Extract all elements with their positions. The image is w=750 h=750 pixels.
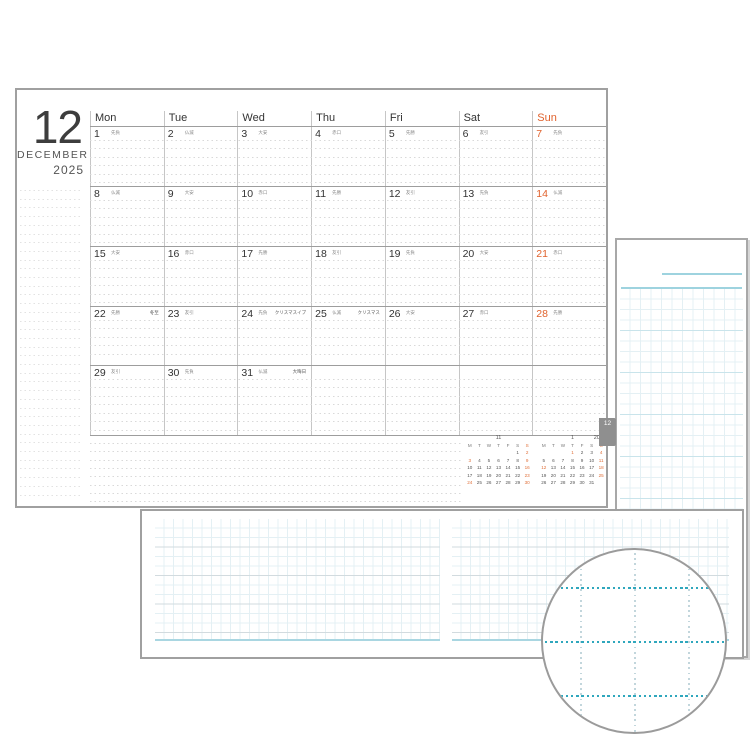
magnified-grid-horizontal-dot (675, 695, 677, 697)
magnified-grid-horizontal-dot (649, 695, 651, 697)
mini-cal-day-header: M (539, 444, 549, 449)
magnified-grid-vertical-dot (634, 714, 636, 716)
magnified-grid-horizontal-dot (654, 695, 656, 697)
magnified-grid-horizontal-dot (561, 695, 563, 697)
mini-cal-date: 22 (513, 474, 523, 479)
mini-cal-day-header: T (549, 444, 559, 449)
magnified-grid-horizontal-dot (711, 695, 713, 697)
magnified-grid-horizontal-dot (581, 641, 583, 643)
magnified-grid-horizontal-dot (722, 695, 724, 697)
magnified-grid-horizontal-dot (706, 641, 708, 643)
magnified-grid-vertical-dot (688, 657, 690, 659)
magnified-grid-horizontal-dot (696, 641, 698, 643)
magnified-grid-horizontal-dot (701, 587, 703, 589)
magnified-grid-vertical-dot (580, 673, 582, 675)
magnified-grid-horizontal-dot (633, 587, 635, 589)
mini-cal-date: 5 (484, 459, 494, 464)
magnified-grid-vertical-dot (580, 657, 582, 659)
magnified-grid-vertical-dot (580, 652, 582, 654)
magnified-grid-horizontal-dot (545, 695, 547, 697)
mini-cal-date: 19 (539, 474, 549, 479)
magnified-grid-vertical-dot (688, 652, 690, 654)
mini-cal-date: 26 (539, 481, 549, 486)
magnified-grid-vertical-dot (688, 667, 690, 669)
grid-panel-left (155, 519, 440, 641)
magnified-grid-vertical-dot (688, 683, 690, 685)
magnified-grid-vertical-dot (634, 652, 636, 654)
magnified-grid-horizontal-dot (607, 695, 609, 697)
magnified-grid-horizontal-dot (665, 641, 667, 643)
magnified-grid-vertical-dot (634, 709, 636, 711)
magnified-grid-vertical-dot (688, 678, 690, 680)
mini-cal-date: 1 (513, 451, 523, 456)
magnified-grid-horizontal-dot (628, 641, 630, 643)
magnified-grid-vertical-dot (688, 662, 690, 664)
mini-cal-date: 20 (549, 474, 559, 479)
mini-cal-day-header: S (522, 444, 532, 449)
mini-cal-day-header: T (568, 444, 578, 449)
magnified-grid-horizontal-dot (706, 587, 708, 589)
magnified-grid-horizontal-dot (685, 695, 687, 697)
magnified-grid-horizontal-dot (561, 641, 563, 643)
magnified-grid-vertical-dot (634, 626, 636, 628)
magnified-grid-horizontal-dot (555, 641, 557, 643)
magnified-grid-vertical-dot (634, 725, 636, 727)
mini-cal-date: 16 (522, 466, 532, 471)
magnified-grid-vertical-dot (580, 574, 582, 576)
mini-cal-date: 13 (549, 466, 559, 471)
mini-cal-day-header: W (484, 444, 494, 449)
mini-cal-date: 28 (503, 481, 513, 486)
mini-cal-date: 1 (568, 451, 578, 456)
mini-cal-date: 6 (494, 459, 504, 464)
magnified-grid-vertical-dot (634, 610, 636, 612)
mini-cal-year-label: 2026 (539, 435, 606, 441)
magnified-grid-horizontal-dot (545, 587, 547, 589)
magnified-grid-vertical-dot (634, 579, 636, 581)
magnified-grid-vertical-dot (688, 626, 690, 628)
magnified-grid-horizontal-dot (587, 641, 589, 643)
magnified-grid-horizontal-dot (555, 587, 557, 589)
magnified-grid-vertical-dot (580, 667, 582, 669)
magnified-grid-vertical-dot (580, 714, 582, 716)
mini-cal-day-header: T (475, 444, 485, 449)
magnified-grid-vertical-dot (580, 589, 582, 591)
mini-cal-day-header: W (558, 444, 568, 449)
mini-cal-date: 9 (522, 459, 532, 464)
mini-cal-date: 18 (596, 466, 606, 471)
magnified-grid-horizontal-dot (561, 587, 563, 589)
magnified-grid-horizontal-dot (644, 587, 646, 589)
mini-cal-date: 19 (484, 474, 494, 479)
magnified-grid-horizontal-dot (639, 695, 641, 697)
magnified-grid-horizontal-dot (576, 587, 578, 589)
magnified-grid-horizontal-dot (623, 641, 625, 643)
magnified-grid-vertical-dot (688, 605, 690, 607)
magnified-grid-vertical-dot (634, 730, 636, 732)
magnified-grid-horizontal-dot (717, 641, 719, 643)
magnified-grid-horizontal-dot (587, 587, 589, 589)
magnified-grid-vertical-dot (688, 584, 690, 586)
magnified-grid-horizontal-dot (680, 695, 682, 697)
magnified-grid-vertical-dot (580, 725, 582, 727)
magnified-grid-vertical-dot (580, 569, 582, 571)
mini-cal-date: 4 (475, 459, 485, 464)
magnified-grid-vertical-dot (688, 569, 690, 571)
magnified-grid-vertical-dot (634, 569, 636, 571)
magnified-grid-vertical-dot (688, 631, 690, 633)
magnified-grid-vertical-dot (688, 647, 690, 649)
magnified-grid-vertical-dot (688, 704, 690, 706)
magnified-grid-vertical-dot (580, 647, 582, 649)
magnified-grid-horizontal-dot (701, 695, 703, 697)
magnified-grid-horizontal-dot (706, 695, 708, 697)
mini-cal-date: 20 (494, 474, 504, 479)
magnified-grid-horizontal-dot (685, 641, 687, 643)
mini-cal-date: 31 (587, 481, 597, 486)
magnified-grid-horizontal-dot (597, 641, 599, 643)
magnified-grid-horizontal-dot (555, 695, 557, 697)
mini-cal-date: 6 (549, 459, 559, 464)
magnified-grid-vertical-dot (634, 631, 636, 633)
magnified-grid-horizontal-dot (711, 641, 713, 643)
mini-cal-date: 29 (513, 481, 523, 486)
magnified-grid-horizontal-dot (654, 641, 656, 643)
magnified-grid-horizontal-dot (618, 641, 620, 643)
magnified-grid-vertical-dot (634, 678, 636, 680)
mini-cal-date: 12 (539, 466, 549, 471)
mini-cal-date: 10 (587, 459, 597, 464)
magnified-grid-horizontal-dot (659, 641, 661, 643)
magnified-grid-vertical-dot (580, 615, 582, 617)
mini-cal-date: 22 (568, 474, 578, 479)
magnified-grid-vertical-dot (688, 558, 690, 560)
magnified-grid-horizontal-dot (659, 587, 661, 589)
magnified-grid-vertical-dot (580, 636, 582, 638)
magnified-grid-horizontal-dot (592, 695, 594, 697)
magnified-grid-horizontal-dot (550, 695, 552, 697)
magnified-grid-horizontal-dot (659, 695, 661, 697)
mini-cal-date: 25 (596, 474, 606, 479)
magnified-grid-horizontal-dot (571, 587, 573, 589)
magnified-grid-vertical-dot (580, 579, 582, 581)
mini-cal-date: 29 (568, 481, 578, 486)
magnified-grid-vertical-dot (634, 615, 636, 617)
mini-cal-day-header: S (587, 444, 597, 449)
magnified-grid-vertical-dot (580, 626, 582, 628)
magnified-grid-vertical-dot (580, 730, 582, 732)
magnified-grid-horizontal-dot (639, 587, 641, 589)
magnified-grid-vertical-dot (634, 647, 636, 649)
magnified-grid-horizontal-dot (602, 695, 604, 697)
magnified-grid-vertical-dot (580, 610, 582, 612)
magnified-grid-horizontal-dot (566, 587, 568, 589)
magnified-grid-horizontal-dot (649, 641, 651, 643)
magnified-grid-horizontal-dot (597, 587, 599, 589)
magnified-grid-horizontal-dot (576, 695, 578, 697)
mini-cal-date: 17 (587, 466, 597, 471)
magnified-grid-vertical-dot (688, 709, 690, 711)
magnified-grid-horizontal-dot (550, 641, 552, 643)
magnified-grid-vertical-dot (634, 636, 636, 638)
mini-cal-date: 4 (596, 451, 606, 456)
magnified-grid-horizontal-dot (628, 587, 630, 589)
magnified-grid-horizontal-dot (623, 587, 625, 589)
mini-cal-date: 9 (577, 459, 587, 464)
magnified-grid-horizontal-dot (644, 641, 646, 643)
magnified-grid-vertical-dot (688, 579, 690, 581)
magnified-grid-vertical-dot (688, 621, 690, 623)
mini-cal-date: 2 (577, 451, 587, 456)
mini-cal-day-header: S (513, 444, 523, 449)
magnified-grid-vertical-dot (580, 678, 582, 680)
mini-cal-date: 16 (577, 466, 587, 471)
magnified-grid-vertical-dot (688, 610, 690, 612)
mini-cal-date: 27 (549, 481, 559, 486)
magnified-grid-horizontal-dot (566, 641, 568, 643)
magnified-grid-horizontal-dot (550, 587, 552, 589)
magnified-grid-vertical-dot (580, 584, 582, 586)
magnified-grid-vertical-dot (634, 688, 636, 690)
mini-cal-date: 3 (465, 459, 475, 464)
magnified-grid-vertical-dot (580, 563, 582, 565)
magnified-grid-horizontal-dot (717, 695, 719, 697)
magnified-grid-vertical-dot (634, 553, 636, 555)
magnified-grid-horizontal-dot (691, 587, 693, 589)
magnified-grid-horizontal-dot (623, 695, 625, 697)
mini-cal-date: 23 (577, 474, 587, 479)
magnified-grid-horizontal-dot (644, 695, 646, 697)
mini-cal-date: 26 (484, 481, 494, 486)
mini-cal-date: 15 (568, 466, 578, 471)
magnified-grid-horizontal-dot (670, 641, 672, 643)
mini-cal-month-label: 11 (465, 435, 532, 441)
mini-cal-date: 11 (596, 459, 606, 464)
mini-cal-date: 5 (539, 459, 549, 464)
mini-cal-date: 7 (558, 459, 568, 464)
monthly-calendar-page: 12 DECEMBER 2025 MonTueWedThuFriSatSun1先… (15, 88, 608, 508)
magnified-grid-vertical-dot (580, 699, 582, 701)
mini-cal-date: 10 (465, 466, 475, 471)
magnified-grid-horizontal-dot (649, 587, 651, 589)
magnified-grid-vertical-dot (634, 683, 636, 685)
mini-cal-date: 14 (503, 466, 513, 471)
mini-cal-day-header: T (494, 444, 504, 449)
mini-cal-date: 21 (503, 474, 513, 479)
magnified-grid-vertical-dot (688, 699, 690, 701)
mini-cal-day-header: F (503, 444, 513, 449)
mini-cal-day-header: M (465, 444, 475, 449)
product-image: 12 DECEMBER 2025 MonTueWedThuFriSatSun1先… (0, 0, 750, 750)
magnified-grid-vertical-dot (580, 558, 582, 560)
magnified-grid-horizontal-dot (592, 587, 594, 589)
magnified-grid-horizontal-dot (602, 641, 604, 643)
magnified-grid-vertical-dot (580, 683, 582, 685)
magnified-grid-vertical-dot (580, 605, 582, 607)
magnified-grid-vertical-dot (634, 563, 636, 565)
magnified-grid-horizontal-dot (613, 641, 615, 643)
magnified-grid-horizontal-dot (581, 695, 583, 697)
mini-cal-date: 24 (465, 481, 475, 486)
magnified-grid-vertical-dot (580, 621, 582, 623)
magnified-grid-vertical-dot (580, 553, 582, 555)
magnified-grid-horizontal-dot (670, 695, 672, 697)
magnified-grid-horizontal-dot (607, 587, 609, 589)
magnified-grid-vertical-dot (634, 704, 636, 706)
mini-cal-date: 23 (522, 474, 532, 479)
magnified-grid-vertical-dot (580, 719, 582, 721)
magnified-grid-horizontal-dot (654, 587, 656, 589)
magnified-grid-vertical-dot (688, 563, 690, 565)
mini-cal-date: 25 (475, 481, 485, 486)
magnified-grid-horizontal-dot (633, 695, 635, 697)
mini-cal-date: 3 (587, 451, 597, 456)
magnified-grid-horizontal-dot (571, 641, 573, 643)
magnified-grid-vertical-dot (634, 584, 636, 586)
magnified-grid-horizontal-dot (571, 695, 573, 697)
magnified-grid-vertical-dot (688, 595, 690, 597)
mini-cal-date: 24 (587, 474, 597, 479)
magnified-grid-vertical-dot (634, 667, 636, 669)
magnified-grid-vertical-dot (688, 673, 690, 675)
magnified-grid-horizontal-dot (628, 695, 630, 697)
mini-cal-date: 28 (558, 481, 568, 486)
magnified-grid-horizontal-dot (717, 587, 719, 589)
magnified-grid-horizontal-dot (597, 695, 599, 697)
magnified-grid-horizontal-dot (618, 587, 620, 589)
magnified-grid-vertical-dot (580, 688, 582, 690)
mini-cal-date: 2 (522, 451, 532, 456)
magnified-grid-horizontal-dot (722, 641, 724, 643)
mini-cal-date: 11 (475, 466, 485, 471)
magnified-grid-vertical-dot (688, 589, 690, 591)
magnified-grid-horizontal-dot (581, 587, 583, 589)
magnified-grid-horizontal-dot (545, 641, 547, 643)
magnified-grid-horizontal-dot (696, 695, 698, 697)
magnified-grid-vertical-dot (634, 574, 636, 576)
mini-cal-date: 13 (494, 466, 504, 471)
mini-cal-date: 7 (503, 459, 513, 464)
mini-cal-date: 18 (475, 474, 485, 479)
magnified-grid-vertical-dot (688, 574, 690, 576)
magnified-grid-horizontal-dot (665, 587, 667, 589)
mini-cal-date: 15 (513, 466, 523, 471)
magnified-grid-vertical-dot (688, 641, 690, 643)
magnified-grid-vertical-dot (688, 725, 690, 727)
magnified-grid-horizontal-dot (607, 641, 609, 643)
mini-cal-date: 12 (484, 466, 494, 471)
magnified-grid-vertical-dot (688, 636, 690, 638)
magnified-grid-horizontal-dot (665, 695, 667, 697)
magnified-grid-vertical-dot (688, 553, 690, 555)
mini-cal-date: 8 (513, 459, 523, 464)
mini-cal-date: 14 (558, 466, 568, 471)
magnified-grid-horizontal-dot (691, 641, 693, 643)
magnified-grid-horizontal-dot (675, 641, 677, 643)
magnified-grid-horizontal-dot (680, 641, 682, 643)
magnified-grid-horizontal-dot (618, 695, 620, 697)
magnified-grid-vertical-dot (688, 693, 690, 695)
magnified-grid-horizontal-dot (696, 587, 698, 589)
magnified-grid-vertical-dot (634, 605, 636, 607)
month-index-tab: 12 (599, 418, 616, 446)
magnified-grid-vertical-dot (580, 600, 582, 602)
magnified-grid-horizontal-dot (675, 587, 677, 589)
magnified-grid-horizontal-dot (639, 641, 641, 643)
magnified-grid-horizontal-dot (691, 695, 693, 697)
magnified-grid-vertical-dot (634, 657, 636, 659)
magnified-grid-horizontal-dot (613, 587, 615, 589)
mini-calendars: 11MTWTFSS1234567891011121314151617181920… (17, 90, 606, 506)
mini-cal-date: 30 (577, 481, 587, 486)
magnified-grid-vertical-dot (634, 719, 636, 721)
magnified-grid-vertical-dot (580, 631, 582, 633)
notes-title-line (662, 273, 742, 275)
magnified-grid-horizontal-dot (602, 587, 604, 589)
magnified-grid-horizontal-dot (613, 695, 615, 697)
magnified-grid-horizontal-dot (566, 695, 568, 697)
magnified-grid-horizontal-dot (711, 587, 713, 589)
magnified-grid-horizontal-dot (587, 695, 589, 697)
magnifier-circle (541, 548, 727, 734)
magnified-grid-vertical-dot (634, 600, 636, 602)
mini-cal-date: 21 (558, 474, 568, 479)
magnified-grid-horizontal-dot (722, 587, 724, 589)
mini-cal-date: 27 (494, 481, 504, 486)
magnified-grid-vertical-dot (688, 714, 690, 716)
mini-cal-date: 8 (568, 459, 578, 464)
magnified-grid-vertical-dot (580, 595, 582, 597)
mini-cal-date: 17 (465, 474, 475, 479)
magnified-grid-vertical-dot (634, 662, 636, 664)
magnified-grid-horizontal-dot (633, 641, 635, 643)
magnified-grid-vertical-dot (580, 704, 582, 706)
magnified-grid-vertical-dot (634, 589, 636, 591)
magnified-grid-vertical-dot (688, 719, 690, 721)
magnified-grid-vertical-dot (634, 699, 636, 701)
magnified-grid-vertical-dot (688, 600, 690, 602)
magnified-grid-vertical-dot (580, 662, 582, 664)
magnified-grid-horizontal-dot (670, 587, 672, 589)
magnified-grid-vertical-dot (634, 621, 636, 623)
magnified-grid-horizontal-dot (701, 641, 703, 643)
magnified-grid-horizontal-dot (592, 641, 594, 643)
mini-cal-day-header: F (577, 444, 587, 449)
magnified-grid-vertical-dot (634, 673, 636, 675)
magnified-grid-vertical-dot (688, 730, 690, 732)
magnified-grid-vertical-dot (688, 615, 690, 617)
magnified-grid-horizontal-dot (576, 641, 578, 643)
magnified-grid-vertical-dot (634, 558, 636, 560)
magnified-grid-vertical-dot (634, 595, 636, 597)
magnified-grid-vertical-dot (688, 688, 690, 690)
magnified-grid-horizontal-dot (680, 587, 682, 589)
mini-cal-date: 30 (522, 481, 532, 486)
magnified-grid-horizontal-dot (685, 587, 687, 589)
magnified-grid-vertical-dot (580, 709, 582, 711)
